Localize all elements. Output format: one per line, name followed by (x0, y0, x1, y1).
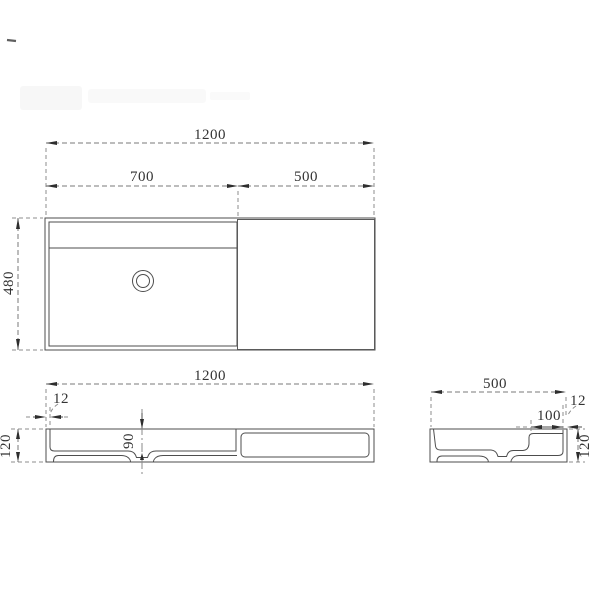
faint-watermark (20, 86, 250, 110)
dim-label: 120 (0, 434, 14, 458)
dim-front-overall-width: 1200 (46, 368, 374, 427)
drain-outer-circle (133, 271, 154, 292)
basin-section-profile (50, 429, 236, 458)
dim-label: 480 (1, 271, 17, 295)
stray-tick (7, 40, 16, 41)
arrowhead (227, 184, 238, 188)
dim-label: 1200 (194, 368, 226, 384)
drain-inner-circle (137, 275, 150, 288)
side-underside-right (511, 452, 563, 462)
arrowhead (16, 429, 20, 439)
dim-label: 500 (483, 376, 507, 392)
dim-top-overall-width: 1200 (46, 127, 374, 216)
arrowhead (140, 419, 144, 429)
arrowhead (46, 184, 57, 188)
front-view: 1200 12 90 120 (0, 368, 374, 477)
arrowhead (140, 453, 144, 460)
dim-front-basin-depth: 90 (121, 409, 144, 477)
technical-drawing: 1200 700 500 480 (0, 0, 600, 600)
dim-label: 500 (294, 169, 318, 185)
arrowhead (238, 184, 249, 188)
dim-top-overall-depth: 480 (1, 218, 43, 350)
side-underside-left (437, 456, 488, 462)
arrowhead (35, 415, 46, 419)
dim-label: 100 (537, 408, 561, 424)
dim-front-overall-height: 120 (0, 429, 44, 462)
side-view: 500 100 12 120 (430, 376, 593, 462)
arrowhead (50, 415, 61, 419)
arrowhead (531, 425, 542, 429)
arrowhead (431, 390, 442, 394)
dim-side-ledge: 100 (516, 405, 563, 432)
top-view-outline (45, 218, 375, 350)
arrowhead (555, 390, 566, 394)
dim-side-overall-height: 120 (569, 429, 593, 462)
arrowhead (16, 339, 20, 350)
arrowhead (46, 382, 57, 386)
dim-top-basin-width: 700 (46, 169, 238, 217)
dim-label: 12 (570, 393, 586, 409)
dim-side-wall-thickness: 12 (567, 393, 586, 429)
arrowhead (363, 382, 374, 386)
basin-rim-outline (49, 222, 237, 346)
deck-underside-recess (241, 433, 369, 457)
dim-label: 120 (577, 434, 593, 458)
arrowhead (363, 141, 374, 145)
dim-label: 1200 (194, 127, 226, 143)
arrowhead (16, 218, 20, 229)
dim-top-deck-width: 500 (238, 169, 374, 188)
dim-label: 90 (121, 433, 137, 449)
drawing-canvas: 1200 700 500 480 (0, 0, 600, 600)
dim-label: 700 (130, 169, 154, 185)
arrowhead (552, 425, 563, 429)
dim-front-wall-thickness: 12 (26, 391, 71, 428)
arrowhead (363, 184, 374, 188)
underside-recess-left (54, 456, 131, 462)
dim-label: 12 (53, 391, 69, 407)
arrowhead (46, 141, 57, 145)
deck-outline (238, 220, 375, 350)
arrowhead (16, 452, 20, 462)
arrowhead (567, 425, 578, 429)
top-view: 1200 700 500 480 (1, 127, 375, 350)
side-section-profile (434, 429, 564, 457)
underside-recess-right (154, 456, 238, 462)
